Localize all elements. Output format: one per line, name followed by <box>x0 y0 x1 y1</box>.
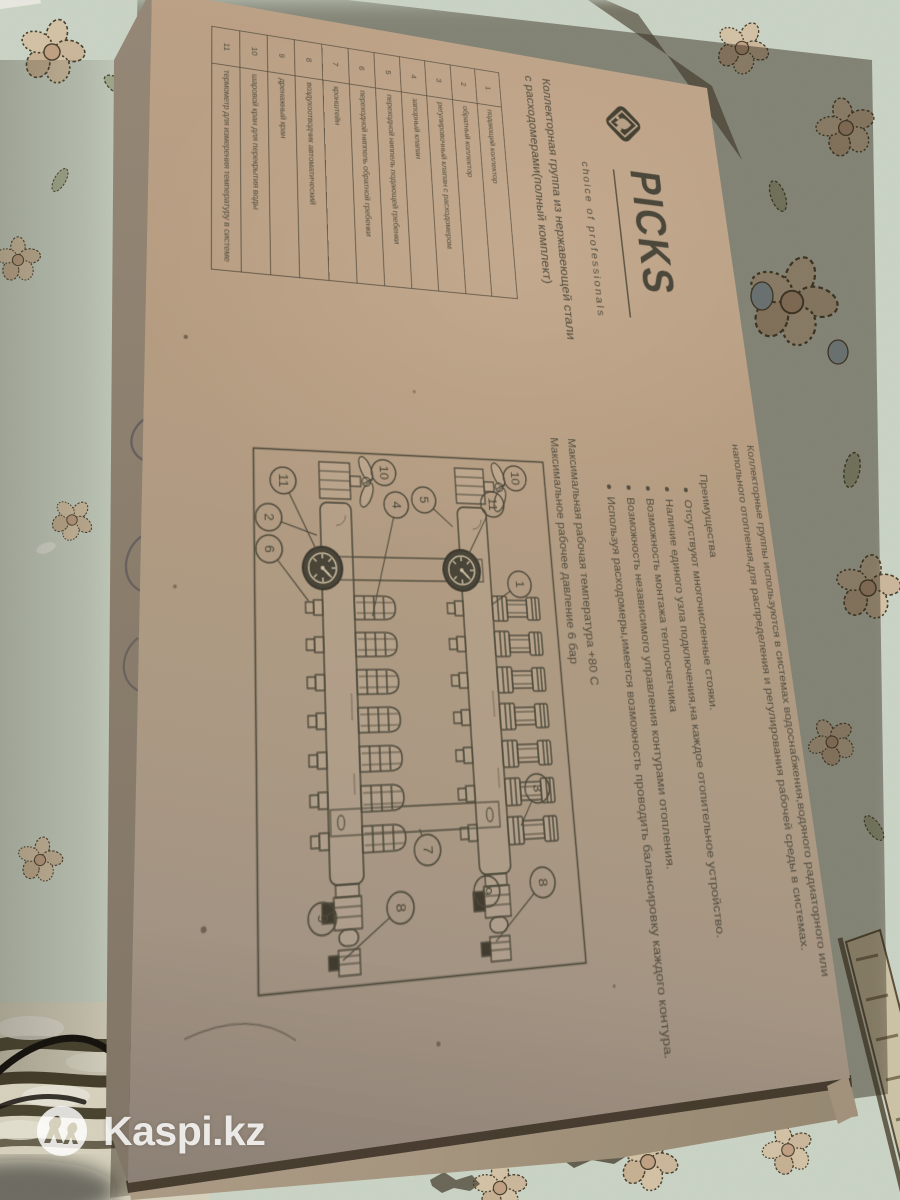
kaspi-watermark: Kaspi.kz <box>36 1105 265 1157</box>
product-photo: PICKS choice of professionals Коллекторн… <box>0 0 900 1200</box>
kaspi-logo-icon <box>36 1105 88 1157</box>
watermark-text: Kaspi.kz <box>103 1108 265 1155</box>
